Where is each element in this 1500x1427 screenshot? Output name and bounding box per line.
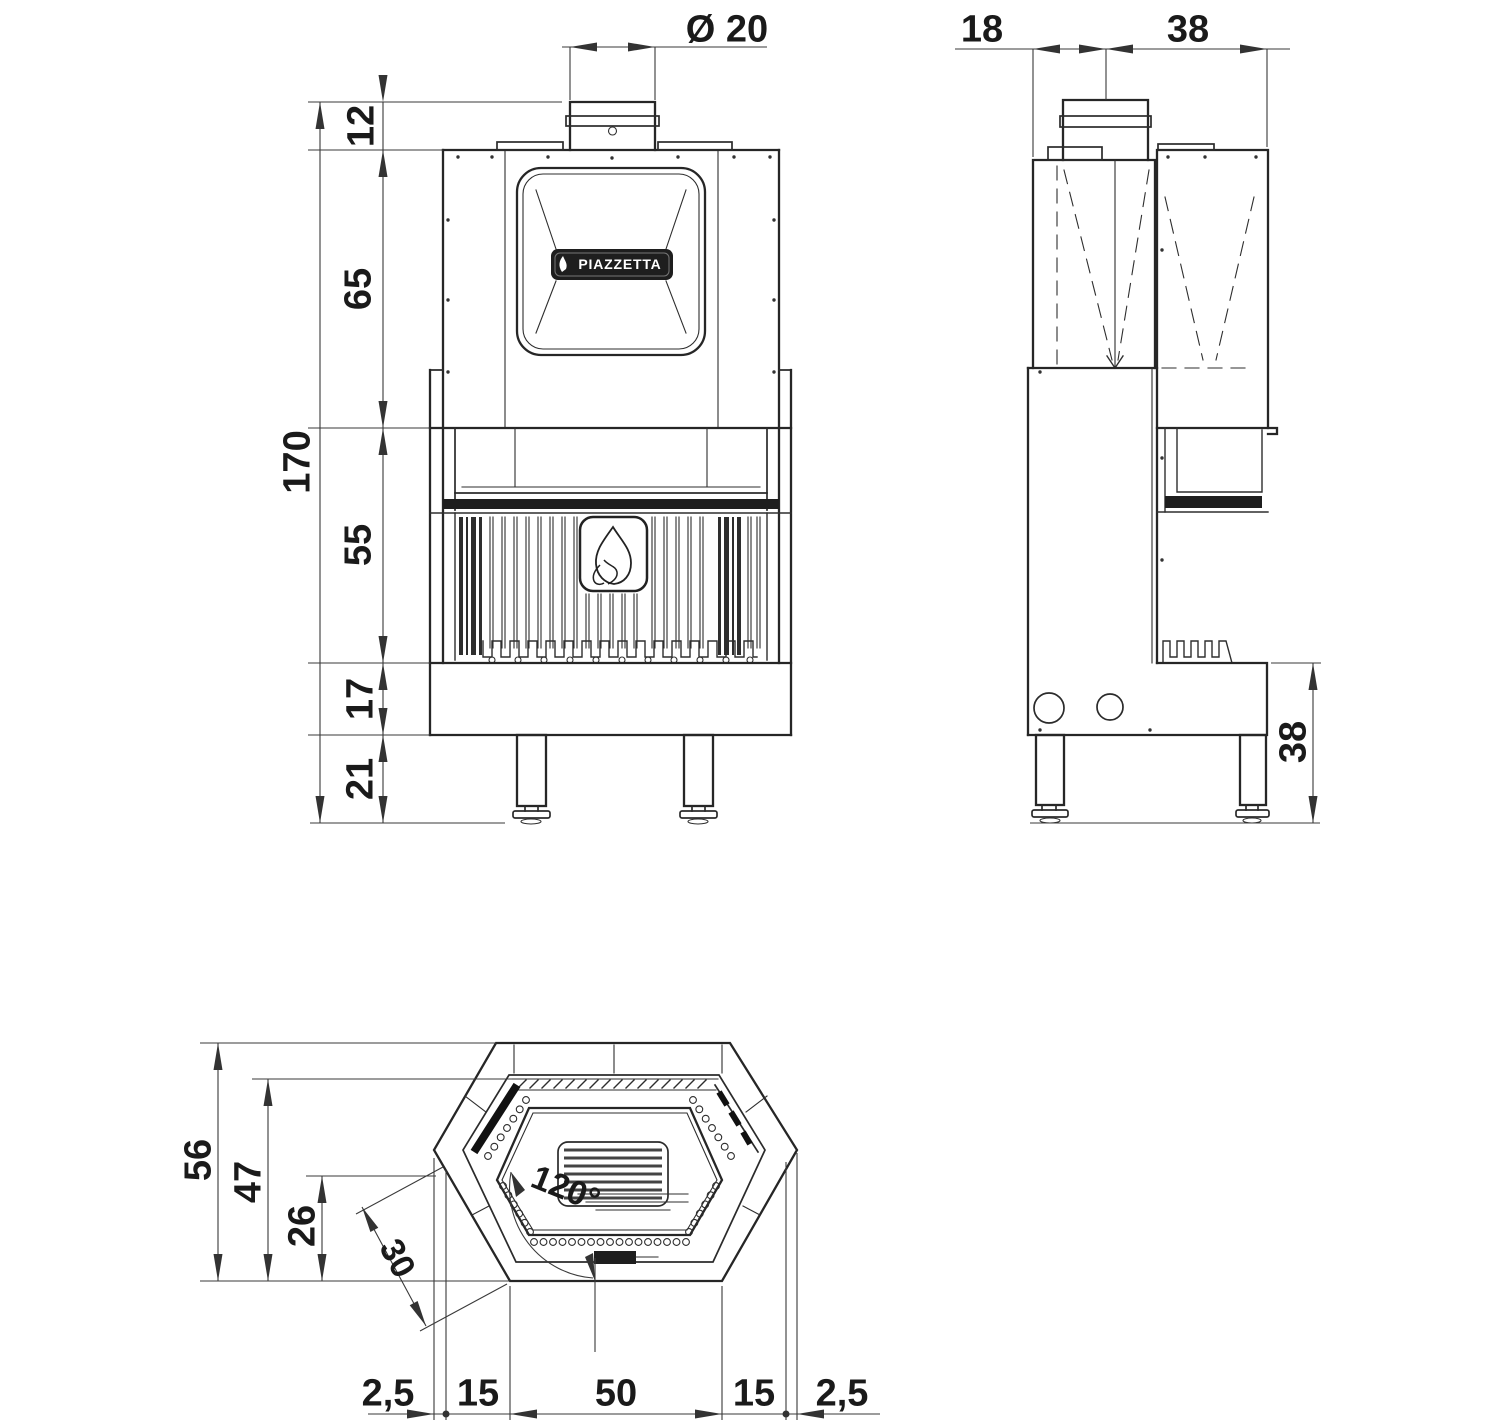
side-flue-pipe [1060, 100, 1151, 160]
dim-chain-5: 2,5 [816, 1372, 869, 1414]
side-back-column [1028, 368, 1152, 735]
plan-back-heat-exchanger [512, 1079, 718, 1090]
grate-serration [483, 641, 757, 657]
dim-total-depth: 56 [177, 1139, 219, 1181]
dim-front-depth-plan: 26 [281, 1205, 323, 1247]
dim-legs-height: 21 [339, 758, 381, 800]
side-hood [1157, 428, 1277, 512]
side-view: 18 38 38 [955, 8, 1321, 823]
flue-pipe [566, 102, 659, 150]
dim-base-height: 17 [339, 678, 381, 720]
dim-flue-diameter: Ø 20 [686, 8, 768, 50]
front-dimensions: Ø 20 12 65 170 55 17 21 [276, 8, 768, 823]
dim-back-depth: 18 [961, 8, 1003, 50]
firebox-grille [430, 513, 791, 663]
dim-top-offset: 12 [340, 105, 382, 147]
base-and-legs [430, 735, 791, 824]
side-serration [1163, 641, 1232, 663]
fireplace-dimension-drawing: PIAZZETTA [0, 0, 1500, 1427]
dim-upper-section: 65 [337, 268, 379, 310]
technical-drawing-page: PIAZZETTA [0, 0, 1500, 1427]
side-front-column [1152, 144, 1268, 663]
dim-chain-1: 2,5 [362, 1372, 415, 1414]
dim-total-height: 170 [276, 430, 318, 493]
dim-front-depth: 38 [1167, 8, 1209, 50]
brand-badge-panel: PIAZZETTA [517, 168, 705, 355]
plan-view: 120° 56 47 26 30 [177, 1043, 880, 1420]
front-view: PIAZZETTA [276, 8, 791, 824]
side-base [1028, 641, 1269, 823]
plan-angle-annotation: 120° [510, 1158, 606, 1352]
plan-firebox-chamber [497, 1108, 722, 1235]
dim-inner-depth: 47 [227, 1161, 269, 1203]
flame-badge [580, 517, 647, 591]
hood-band [430, 428, 791, 513]
brand-logo-text: PIAZZETTA [578, 256, 661, 272]
dim-firebox-height: 55 [337, 524, 379, 566]
dim-side-face: 30 [372, 1233, 423, 1284]
dim-chain-3: 50 [595, 1372, 637, 1414]
dim-chain-4: 15 [733, 1372, 775, 1414]
side-upper-hopper [1028, 147, 1157, 368]
dim-plinth-height: 38 [1272, 721, 1314, 763]
dim-chain-2: 15 [457, 1372, 499, 1414]
plan-dimensions: 56 47 26 30 2,5 15 50 15 2,5 [177, 1043, 880, 1420]
